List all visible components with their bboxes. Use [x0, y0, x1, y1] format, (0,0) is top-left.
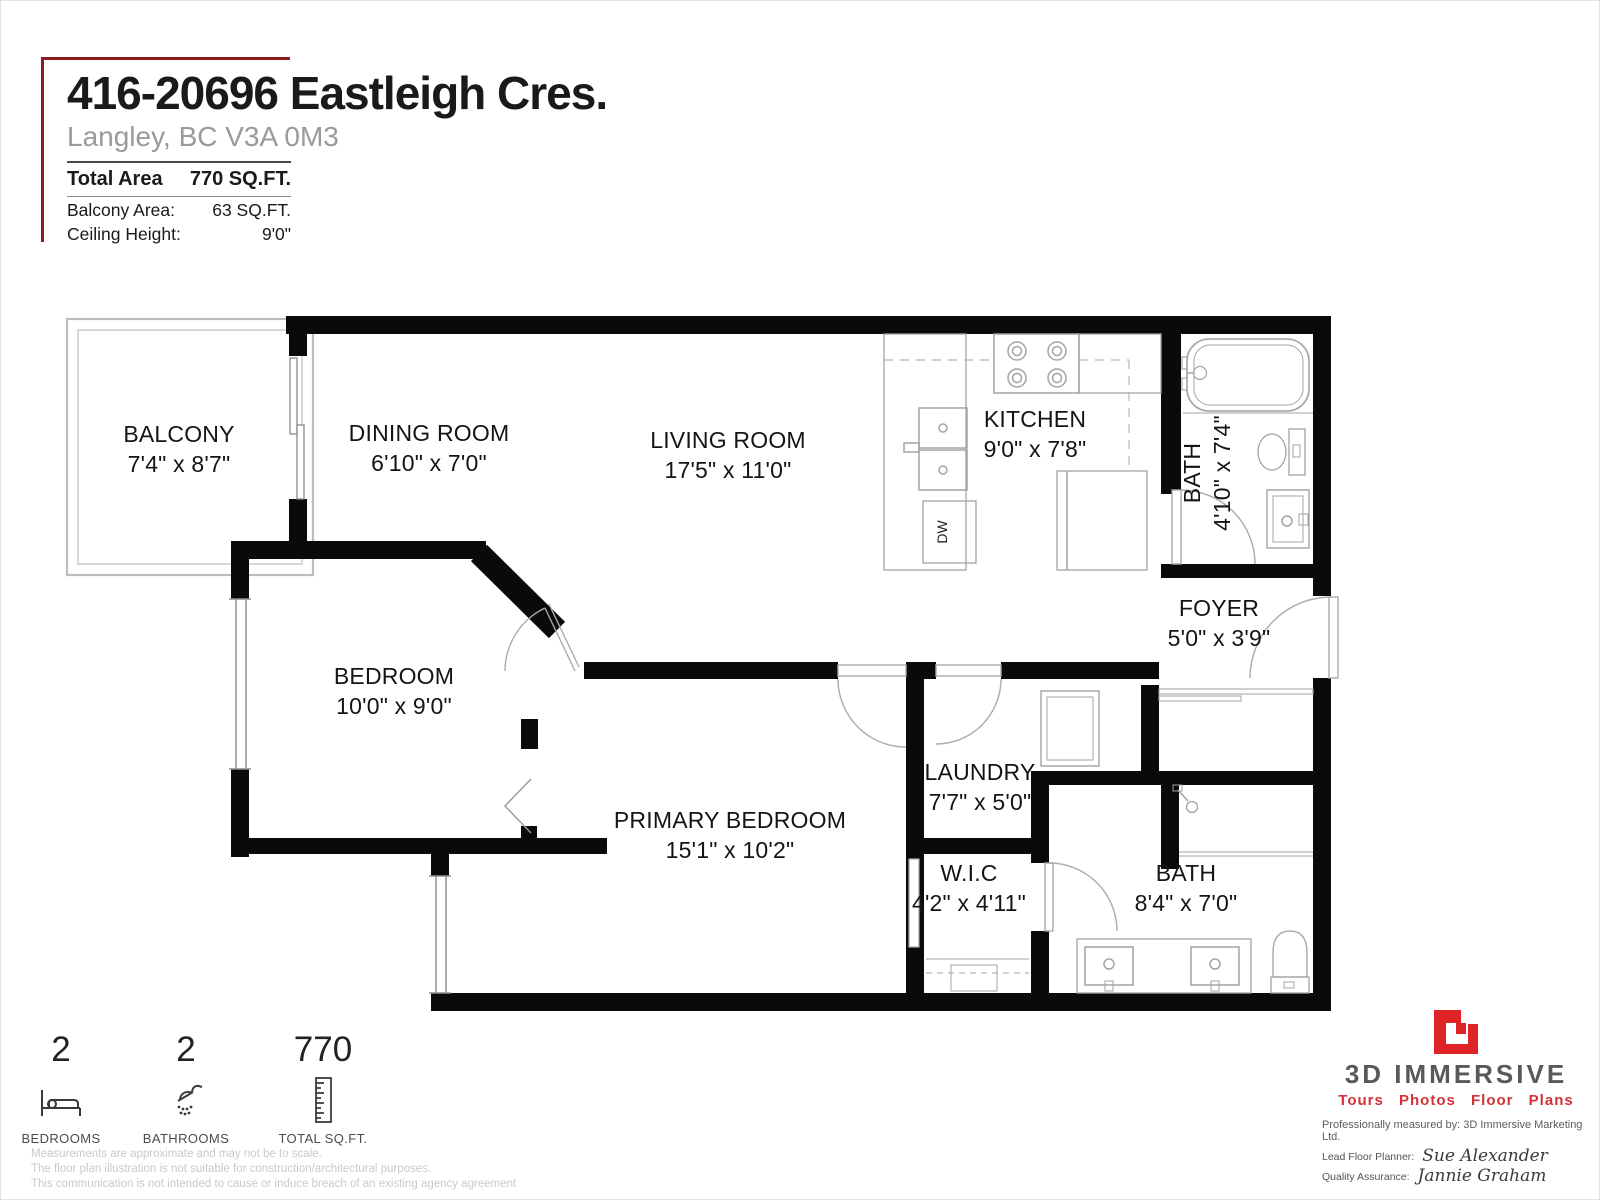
laundry-door [936, 665, 1001, 744]
wall [521, 826, 537, 838]
wall [521, 719, 538, 749]
bedrooms-label: BEDROOMS [11, 1131, 111, 1146]
stat-total-sqft: 770 TOTAL SQ.FT. [263, 1031, 383, 1146]
brand-company-name: 3D IMMERSIVE [1316, 1059, 1596, 1090]
shower [1173, 785, 1313, 856]
wall [1161, 785, 1179, 869]
kitchen-counter [1079, 334, 1161, 393]
measured-by-text: Professionally measured by: 3D Immersive… [1316, 1119, 1596, 1143]
wall [924, 838, 1031, 854]
wall [584, 662, 838, 679]
room-label-kitchen: KITCHEN 9'0" x 7'8" [875, 404, 1195, 464]
disclaimer-line: This communication is not intended to ca… [31, 1177, 516, 1192]
bed-icon [11, 1075, 111, 1125]
wall [1031, 931, 1049, 993]
wall [1001, 662, 1159, 679]
window [429, 876, 451, 993]
total-sqft-label: TOTAL SQ.FT. [263, 1131, 383, 1146]
washer-dryer [1041, 691, 1099, 766]
bathrooms-count: 2 [136, 1031, 236, 1069]
ruler-icon [263, 1075, 383, 1125]
primary-bedroom-door [838, 665, 906, 747]
room-label-foyer: FOYER 5'0" x 3'9" [1059, 593, 1379, 653]
bedrooms-count: 2 [11, 1031, 111, 1069]
shower-icon [136, 1075, 236, 1125]
qa-signature: Jannie Graham [1418, 1169, 1547, 1183]
toilet [1258, 429, 1305, 475]
fridge [1057, 471, 1147, 570]
stove [994, 334, 1079, 393]
disclaimer-line: The floor plan illustration is not suita… [31, 1162, 516, 1177]
wall [431, 993, 1331, 1011]
room-label-bedroom: BEDROOM 10'0" x 9'0" [234, 661, 554, 721]
3d-immersive-logo-icon [1433, 1009, 1479, 1055]
qa-label: Quality Assurance: [1322, 1171, 1410, 1183]
disclaimer-line: Measurements are approximate and may not… [31, 1147, 516, 1162]
disclaimer: Measurements are approximate and may not… [31, 1147, 516, 1192]
total-sqft-count: 770 [263, 1031, 383, 1069]
bathroom-sink [1267, 490, 1309, 548]
room-label-bath-upper: BATH 4'10" x 7'4" [1177, 353, 1237, 593]
room-label-bath-lower: BATH 8'4" x 7'0" [1026, 858, 1346, 918]
vanity-double-sinks [1077, 939, 1251, 993]
wall [1313, 678, 1331, 1011]
closet-sliding-doors [1159, 689, 1313, 701]
wall [231, 838, 607, 854]
floor-plan-page: 416-20696 Eastleigh Cres. Langley, BC V3… [0, 0, 1600, 1200]
wall [1141, 685, 1159, 771]
closet-shelves [926, 959, 1029, 991]
planner-signature: Sue Alexander [1422, 1149, 1548, 1163]
wall-diagonal [479, 553, 557, 630]
wall [1313, 316, 1331, 596]
closet-bifold-door [505, 779, 531, 833]
wall [231, 541, 486, 559]
dishwasher-label: DW [934, 520, 950, 544]
brand-tagline: Tours Photos Floor Plans [1316, 1092, 1596, 1109]
stat-bedrooms: 2 BEDROOMS [11, 1031, 111, 1146]
stat-bathrooms: 2 BATHROOMS [136, 1031, 236, 1146]
room-label-laundry: LAUNDRY 7'7" x 5'0" [820, 757, 1140, 817]
branding-block: 3D IMMERSIVE Tours Photos Floor Plans Pr… [1316, 1009, 1596, 1183]
toilet [1271, 931, 1309, 993]
room-label-living-room: LIVING ROOM 17'5" x 11'0" [568, 425, 888, 485]
room-label-dining-room: DINING ROOM 6'10" x 7'0" [269, 418, 589, 478]
bathrooms-label: BATHROOMS [136, 1131, 236, 1146]
planner-label: Lead Floor Planner: [1322, 1151, 1414, 1163]
wall [289, 316, 307, 356]
